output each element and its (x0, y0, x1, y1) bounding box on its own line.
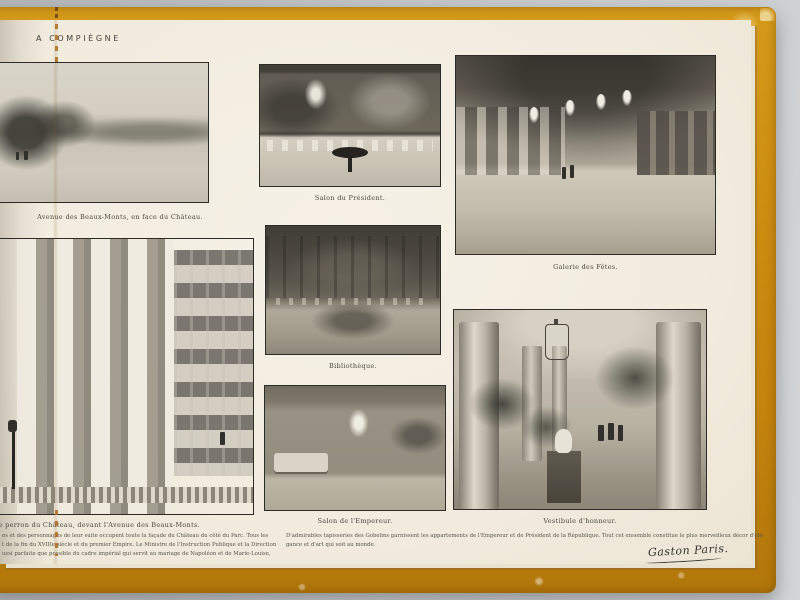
photo-perron-du-chateau (0, 238, 254, 515)
photo-facade-columns (17, 239, 174, 514)
photo-figure (220, 432, 225, 445)
photo-figure (598, 425, 604, 441)
photo-vestibule-d-honneur (453, 309, 707, 510)
page-title: A COMPIÈGNE (36, 34, 121, 43)
photo-statue (555, 429, 572, 453)
photo-painting-wall (637, 111, 715, 174)
photo-palm (595, 346, 675, 410)
photo-salon-du-president (259, 64, 441, 187)
photo-window-mullions (174, 250, 253, 476)
photo-caption: Galerie des Fêtes. (455, 263, 716, 271)
photo-balustrade (0, 487, 253, 504)
photo-chandelier (596, 94, 606, 110)
photo-figure (618, 425, 623, 441)
photo-bibliotheque (265, 225, 441, 355)
photo-galerie-des-fetes (455, 55, 716, 255)
column-text-line: es et des personnages de leur suite occu… (2, 532, 268, 541)
cover-corner-wear (760, 8, 775, 21)
photo-caption: Le perron du Château, devant l'Avenue de… (0, 521, 274, 529)
column-text-line: t de la fin du XVIIIe siècle et du premi… (2, 541, 276, 550)
photo-avenue-des-beaux-monts (0, 62, 209, 203)
photo-chair-row (276, 298, 429, 306)
photo-caption: Salon de l'Empereur. (264, 517, 446, 525)
column-text-line: ussi parfaite que possible du cadre impé… (2, 550, 271, 559)
photo-figure (608, 423, 614, 440)
photo-figure (562, 167, 566, 179)
photo-pedestal (547, 451, 581, 503)
binding-stitch-top (55, 24, 58, 64)
footer-text-line: gance et d'art qui soit au monde. (286, 541, 375, 550)
photo-window-row (456, 107, 565, 174)
binding-stitch-bottom (55, 510, 58, 556)
photo-caption: Avenue des Beaux-Monts, en face du Châte… (20, 213, 220, 221)
photo-caption: Vestibule d'honneur. (453, 517, 707, 525)
photo-chandelier (529, 107, 539, 123)
photo-lamp-post (12, 429, 15, 489)
photograph-of-open-album: A COMPIÈGNE Avenue des Beaux-Monts, en f… (0, 0, 800, 600)
photo-lantern (545, 324, 569, 360)
footer-text-line: D'admirables tapisseries des Gobelins ga… (286, 532, 764, 541)
photo-sofa (274, 453, 328, 472)
photo-column (656, 322, 701, 509)
photo-table-stem (348, 157, 352, 172)
photo-figure (570, 165, 574, 178)
binding-crease (53, 20, 58, 564)
photo-chandelier (565, 100, 575, 116)
photo-bookcases (266, 236, 440, 297)
album-page: A COMPIÈGNE Avenue des Beaux-Monts, en f… (0, 20, 751, 564)
photo-salon-de-l-empereur (264, 385, 446, 511)
photo-caption: Bibliothèque. (265, 362, 441, 370)
photo-caption: Salon du Président. (259, 194, 441, 202)
photo-lamp-head (8, 420, 17, 432)
photo-figure (24, 151, 28, 160)
photo-figure (16, 152, 19, 160)
photo-chandelier (622, 90, 632, 106)
